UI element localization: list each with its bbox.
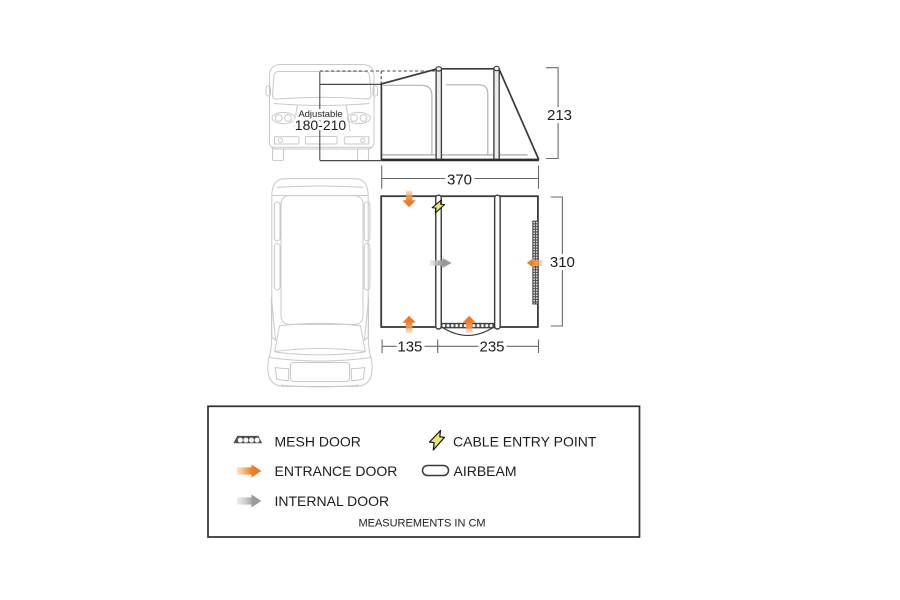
- svg-text:310: 310: [550, 254, 575, 271]
- svg-text:AIRBEAM: AIRBEAM: [454, 463, 517, 479]
- svg-text:370: 370: [447, 172, 472, 189]
- svg-text:MESH DOOR: MESH DOOR: [275, 433, 361, 449]
- svg-text:MEASUREMENTS IN CM: MEASUREMENTS IN CM: [358, 518, 485, 530]
- svg-text:235: 235: [479, 339, 504, 356]
- svg-text:180-210: 180-210: [295, 117, 347, 133]
- svg-text:213: 213: [547, 107, 572, 124]
- svg-text:ENTRANCE DOOR: ENTRANCE DOOR: [275, 463, 398, 479]
- svg-text:CABLE ENTRY POINT: CABLE ENTRY POINT: [453, 433, 597, 449]
- svg-text:INTERNAL DOOR: INTERNAL DOOR: [275, 493, 390, 509]
- svg-text:135: 135: [397, 339, 422, 356]
